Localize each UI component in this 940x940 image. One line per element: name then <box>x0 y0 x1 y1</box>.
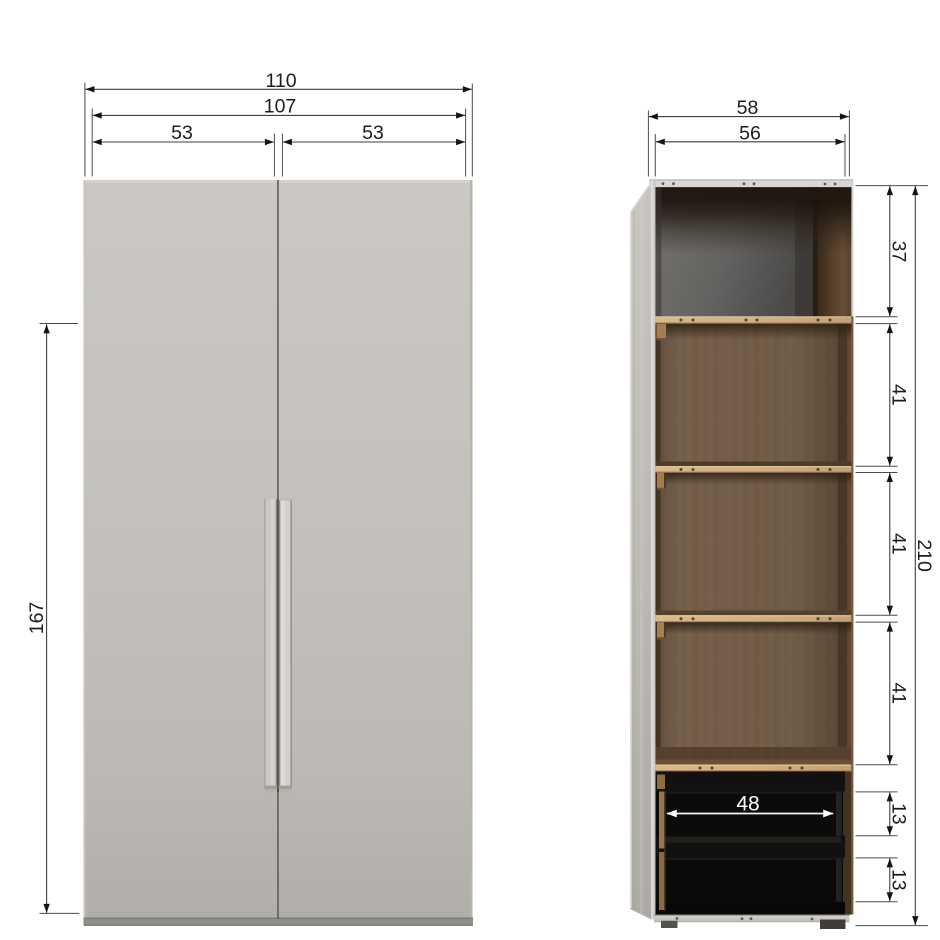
svg-text:37: 37 <box>887 241 909 263</box>
svg-text:110: 110 <box>265 70 296 92</box>
svg-text:41: 41 <box>887 384 909 406</box>
svg-text:13: 13 <box>887 869 909 891</box>
svg-text:53: 53 <box>362 122 384 144</box>
svg-text:53: 53 <box>171 122 193 144</box>
svg-text:107: 107 <box>264 96 297 118</box>
svg-text:48: 48 <box>736 792 759 815</box>
svg-text:41: 41 <box>887 533 909 555</box>
svg-text:210: 210 <box>913 539 935 572</box>
svg-text:167: 167 <box>26 602 48 635</box>
svg-text:56: 56 <box>739 122 761 144</box>
svg-text:13: 13 <box>887 803 909 825</box>
svg-text:41: 41 <box>887 682 909 704</box>
svg-text:58: 58 <box>737 97 759 119</box>
